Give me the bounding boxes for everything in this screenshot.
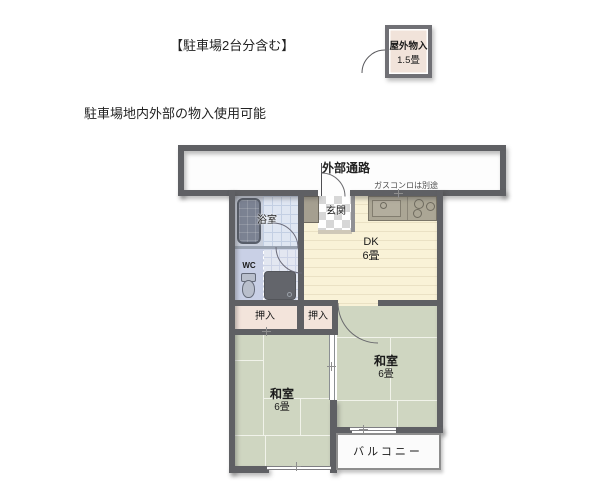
storage-usage-note: 駐車場地内外部の物入使用可能: [84, 107, 266, 122]
closet-left-label: 押入: [244, 311, 286, 322]
entrance-label: 玄関: [320, 206, 352, 217]
stove-burner-icon: [426, 202, 435, 211]
wall-closet-bottom: [229, 329, 338, 335]
gas-stove-note: ガスコンロは別途: [374, 181, 438, 190]
washitsu-right-size: 6畳: [362, 369, 410, 380]
measure-tick: [327, 362, 336, 371]
outdoor-storage-size: 1.5畳: [397, 52, 420, 66]
measure-tick: [394, 189, 403, 198]
drain-icon: [287, 292, 292, 297]
counter-divider: [407, 197, 408, 220]
outdoor-storage-label: 屋外物入: [389, 38, 427, 52]
washitsu-right-label: 和室: [362, 355, 410, 368]
wall-right: [437, 190, 443, 433]
wall-mid-right: [378, 300, 443, 306]
bathroom-label: 浴室: [246, 215, 288, 226]
floor-plan-page: 【駐車場2台分含む】 駐車場地内外部の物入使用可能 屋外物入 1.5畳 外部通路…: [0, 0, 600, 498]
measure-tick: [359, 425, 368, 434]
tatami-line: [263, 335, 264, 435]
parking-note: 【駐車場2台分含む】: [170, 39, 294, 54]
faucet-icon: [380, 202, 387, 209]
entrance-threshold: [318, 190, 350, 196]
wall-bath-right: [298, 190, 304, 306]
wall-mid-left: [229, 300, 338, 306]
tatami-line: [397, 400, 398, 427]
passage-label: 外部通路: [322, 162, 370, 176]
closet-right-label: 押入: [302, 311, 334, 322]
tatami-line: [235, 435, 330, 436]
passage-wall-bottom-left: [178, 190, 235, 196]
measure-tick: [262, 327, 271, 336]
washitsu-left-label: 和室: [258, 388, 306, 401]
dk-size: 6畳: [353, 250, 389, 262]
outdoor-storage-box: 屋外物入 1.5畳: [385, 25, 432, 78]
storage-door-arc: [362, 50, 385, 73]
shoe-cabinet: [303, 196, 319, 223]
stove-burner-icon: [413, 209, 422, 218]
dk-label: DK: [353, 236, 389, 248]
passage-wall-bottom-right: [443, 190, 506, 196]
tatami-line: [265, 435, 266, 466]
kitchen-sink: [372, 200, 401, 217]
entrance-step: [318, 230, 352, 234]
wall-top-left: [229, 190, 318, 196]
tatami-line: [337, 400, 437, 401]
wall-bottom-left: [229, 466, 269, 473]
passage-wall-top: [178, 145, 506, 151]
balcony-window: [350, 427, 398, 431]
tatami-line: [235, 360, 263, 361]
washitsu-left-size: 6畳: [258, 402, 306, 413]
tatami-line: [337, 337, 437, 338]
toilet-bowl-icon: [242, 280, 255, 298]
wc-label: WC: [238, 262, 260, 271]
balcony-label: バルコニー: [345, 446, 431, 458]
stove-burner-icon: [414, 199, 424, 209]
measure-tick: [292, 462, 301, 471]
